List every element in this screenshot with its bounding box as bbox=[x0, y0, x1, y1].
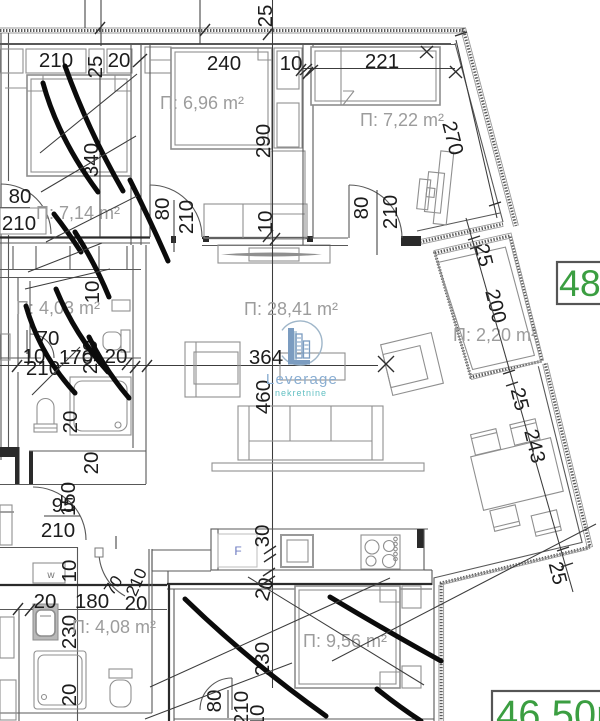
svg-text:П: 7,22 m²: П: 7,22 m² bbox=[360, 110, 444, 130]
svg-text:290: 290 bbox=[252, 124, 275, 158]
svg-text:10: 10 bbox=[254, 211, 277, 234]
svg-text:П: 9,56 m²: П: 9,56 m² bbox=[303, 631, 387, 651]
svg-text:180: 180 bbox=[75, 590, 109, 613]
svg-text:20: 20 bbox=[59, 411, 82, 434]
svg-text:80: 80 bbox=[151, 198, 174, 221]
svg-text:364: 364 bbox=[249, 346, 283, 369]
svg-text:150: 150 bbox=[57, 482, 80, 516]
svg-text:П: 2,20 m²: П: 2,20 m² bbox=[453, 325, 537, 345]
svg-text:П: 28,41 m²: П: 28,41 m² bbox=[244, 299, 338, 319]
svg-text:46,50m: 46,50m bbox=[496, 693, 600, 721]
svg-text:210: 210 bbox=[379, 195, 402, 229]
svg-text:30: 30 bbox=[251, 525, 274, 548]
svg-text:20: 20 bbox=[34, 590, 57, 613]
svg-text:20: 20 bbox=[108, 49, 131, 72]
svg-text:П: 4,08 m²: П: 4,08 m² bbox=[72, 617, 156, 637]
svg-text:48: 48 bbox=[559, 262, 600, 304]
svg-text:80: 80 bbox=[9, 185, 32, 208]
svg-text:10: 10 bbox=[246, 705, 269, 721]
svg-text:20: 20 bbox=[80, 452, 103, 475]
svg-text:25: 25 bbox=[84, 56, 107, 79]
svg-text:25: 25 bbox=[254, 5, 277, 28]
svg-text:10: 10 bbox=[58, 560, 81, 583]
svg-text:Leverage: Leverage bbox=[266, 371, 338, 388]
svg-text:w: w bbox=[46, 570, 55, 581]
svg-text:80: 80 bbox=[350, 197, 373, 220]
svg-text:210: 210 bbox=[175, 200, 198, 234]
svg-text:П: 6,96 m²: П: 6,96 m² bbox=[160, 93, 244, 113]
svg-text:221: 221 bbox=[365, 50, 399, 73]
svg-text:nekretnine: nekretnine bbox=[275, 388, 327, 398]
svg-text:20: 20 bbox=[58, 684, 81, 707]
svg-text:240: 240 bbox=[207, 52, 241, 75]
svg-text:210: 210 bbox=[41, 519, 75, 542]
svg-text:F: F bbox=[234, 544, 241, 558]
svg-text:210: 210 bbox=[2, 212, 36, 235]
svg-text:20: 20 bbox=[105, 345, 128, 368]
svg-text:П: 7,14 m²: П: 7,14 m² bbox=[36, 203, 120, 223]
